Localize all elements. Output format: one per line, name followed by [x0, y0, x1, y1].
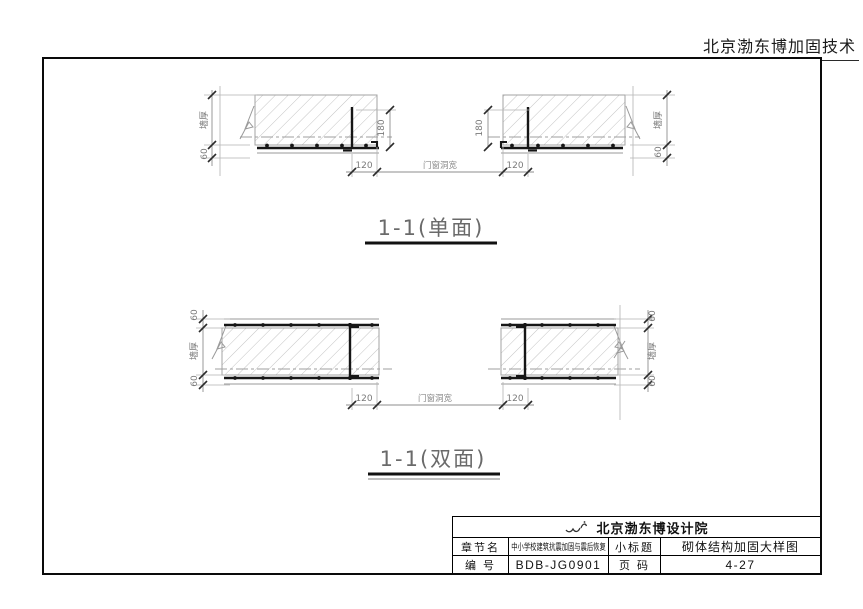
section-title-text: 1-1(单面)	[378, 216, 485, 240]
section-double-title: 1-1(双面)	[368, 447, 500, 479]
dim-60: 60	[200, 148, 210, 160]
dim-60: 60	[190, 375, 200, 387]
drawing-canvas: 墙厚 60 墙厚 60	[44, 59, 820, 573]
institute-name: 北京渤东博设计院	[596, 518, 708, 537]
section-single-title: 1-1(单面)	[365, 216, 497, 243]
subtitle-value-cell: 砌体结构加固大样图	[661, 538, 820, 556]
dim-60: 60	[648, 310, 658, 322]
dim-opening-width: 门窗洞宽	[423, 160, 458, 171]
title-block-institute-row: 北京渤东博设计院	[453, 517, 820, 538]
dim-180: 180	[377, 119, 387, 136]
dim-right-single: 墙厚 60	[625, 86, 675, 176]
number-label-cell: 编 号	[453, 556, 509, 574]
drawing-frame: 墙厚 60 墙厚 60	[42, 57, 822, 575]
wall-right	[503, 95, 625, 145]
dim-120: 120	[355, 394, 372, 404]
dim-bottom-chain-double: 120 120 门窗洞宽	[346, 382, 534, 410]
section-double-detail: 60 墙厚 60 60	[188, 305, 658, 479]
company-name: 北京渤东博加固技术	[703, 39, 856, 56]
title-block-table: 章节名 中小学校建筑抗震加固与震后恢复 小标题 砌体结构加固大样图 编 号 BD…	[453, 538, 820, 574]
chapter-value: 中小学校建筑抗震加固与震后恢复	[511, 540, 606, 553]
dim-wall-thickness: 墙厚	[188, 342, 200, 360]
dim-180: 180	[475, 119, 485, 136]
number-value-cell: BDB-JG0901	[509, 556, 609, 574]
chapter-value-cell: 中小学校建筑抗震加固与震后恢复	[509, 538, 609, 556]
dim-120: 120	[506, 394, 523, 404]
dim-left-single: 墙厚 60	[198, 86, 257, 176]
dim-60: 60	[190, 309, 200, 321]
dim-bottom-chain-single: 120 120 门窗洞宽	[346, 147, 534, 177]
wall-right	[501, 328, 618, 375]
dim-60: 60	[648, 375, 658, 387]
break-symbol	[240, 106, 254, 139]
dim-wall-thickness: 墙厚	[652, 111, 664, 129]
dim-120: 120	[506, 161, 523, 171]
section-single-detail: 墙厚 60 墙厚 60	[198, 86, 675, 243]
subtitle-label-cell: 小标题	[609, 538, 661, 556]
institute-logo-icon	[564, 520, 590, 534]
title-block: 北京渤东博设计院 章节名 中小学校建筑抗震加固与震后恢复 小标题 砌体结构加固大…	[452, 516, 820, 573]
dim-60: 60	[654, 146, 664, 158]
dim-right-double: 60 墙厚 60	[614, 305, 658, 420]
dim-wall-thickness: 墙厚	[646, 342, 658, 360]
dim-opening-width: 门窗洞宽	[418, 393, 453, 404]
chapter-label-cell: 章节名	[453, 538, 509, 556]
dim-wall-thickness: 墙厚	[198, 111, 210, 129]
wall-left	[255, 95, 377, 145]
dim-120: 120	[355, 161, 372, 171]
page-value-cell: 4-27	[661, 556, 820, 574]
page-label-cell: 页 码	[609, 556, 661, 574]
section-title-text: 1-1(双面)	[380, 447, 487, 471]
wall-left	[222, 328, 379, 375]
